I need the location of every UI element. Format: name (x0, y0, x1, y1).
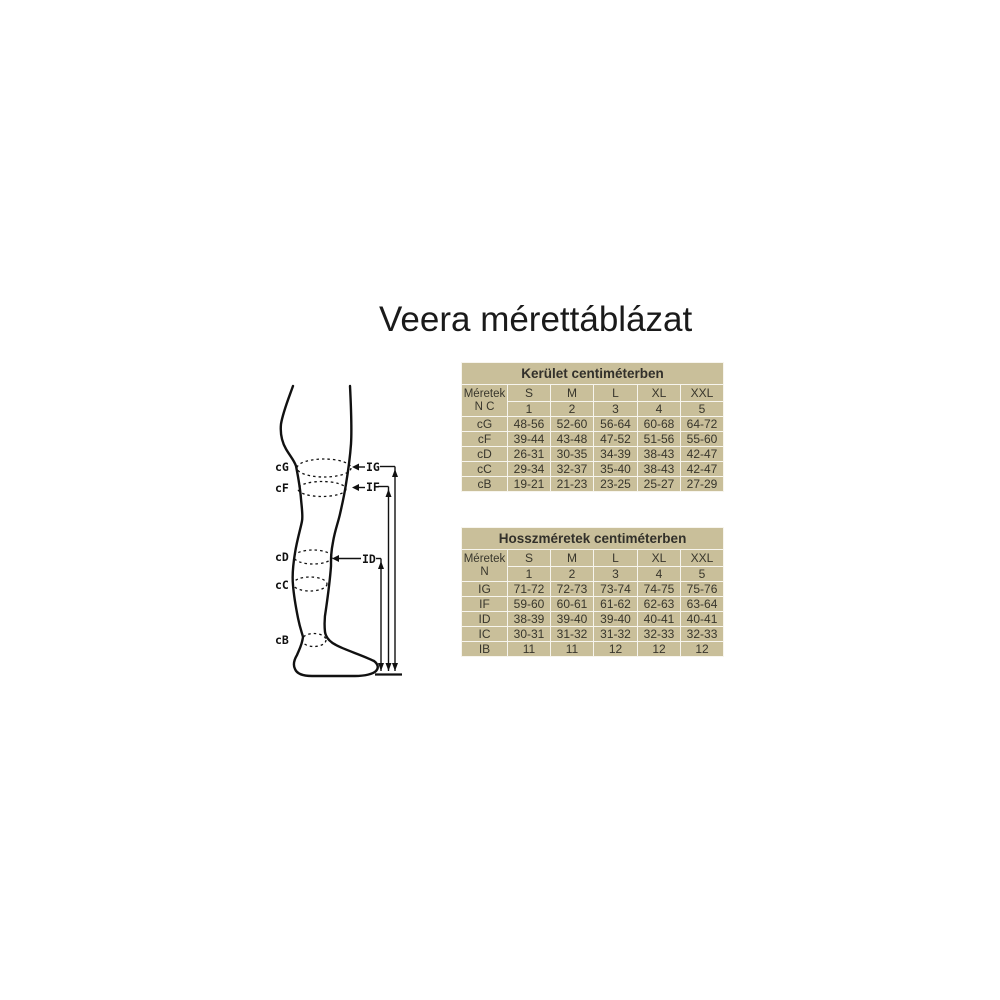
value-cell: 61-62 (594, 597, 638, 612)
value-cell: 23-25 (594, 477, 638, 492)
value-cell: 40-41 (638, 612, 681, 627)
value-cell: 40-41 (681, 612, 724, 627)
if-label: IF (366, 480, 380, 494)
value-cell: 71-72 (508, 582, 551, 597)
row-label-cell: cF (462, 432, 508, 447)
value-cell: 26-31 (508, 447, 551, 462)
value-cell: 62-63 (638, 597, 681, 612)
if-down-arrowhead (386, 663, 392, 671)
value-cell: 12 (638, 642, 681, 657)
value-cell: 55-60 (681, 432, 724, 447)
value-cell: 32-33 (681, 627, 724, 642)
value-cell: 19-21 (508, 477, 551, 492)
value-cell: 32-37 (551, 462, 594, 477)
value-cell: 60-61 (551, 597, 594, 612)
ig-up-arrowhead (392, 469, 398, 477)
ig-label: IG (366, 460, 380, 474)
cf-label: cF (275, 481, 289, 495)
circumference-table: Kerület centiméterbenMéretekN CSMLXLXXL1… (461, 362, 724, 492)
value-cell: 38-39 (508, 612, 551, 627)
value-cell: 12 (594, 642, 638, 657)
size-header-cell: XL (638, 550, 681, 567)
value-cell: 42-47 (681, 462, 724, 477)
value-cell: 39-40 (594, 612, 638, 627)
value-cell: 21-23 (551, 477, 594, 492)
value-cell: 38-43 (638, 462, 681, 477)
table-title: Kerület centiméterben (462, 363, 724, 385)
value-cell: 27-29 (681, 477, 724, 492)
table-row: cF39-4443-4847-5251-5655-60 (462, 432, 724, 447)
value-cell: 42-47 (681, 447, 724, 462)
cd-label: cD (275, 550, 289, 564)
value-cell: 11 (508, 642, 551, 657)
id-label: ID (362, 552, 376, 566)
value-cell: 48-56 (508, 417, 551, 432)
size-number-cell: 5 (681, 402, 724, 417)
value-cell: 31-32 (594, 627, 638, 642)
if-up-arrowhead (386, 489, 392, 497)
cc-circumference-ellipse (293, 577, 327, 591)
value-cell: 38-43 (638, 447, 681, 462)
table-row: cB19-2121-2323-2525-2727-29 (462, 477, 724, 492)
value-cell: 11 (551, 642, 594, 657)
value-cell: 52-60 (551, 417, 594, 432)
size-header-cell: M (551, 385, 594, 402)
corner-line-2: N C (462, 401, 507, 414)
table-row: IG71-7272-7373-7474-7575-76 (462, 582, 724, 597)
size-header-cell: XXL (681, 385, 724, 402)
value-cell: 72-73 (551, 582, 594, 597)
row-label-cell: ID (462, 612, 508, 627)
value-cell: 34-39 (594, 447, 638, 462)
cg-label: cG (275, 460, 289, 474)
page-title: Veera mérettáblázat (379, 299, 692, 340)
value-cell: 59-60 (508, 597, 551, 612)
row-label-cell: IG (462, 582, 508, 597)
cc-label: cC (275, 578, 289, 592)
corner-header-cell: MéretekN C (462, 385, 508, 417)
size-number-cell: 1 (508, 402, 551, 417)
size-header-cell: L (594, 385, 638, 402)
value-cell: 43-48 (551, 432, 594, 447)
size-number-cell: 4 (638, 567, 681, 582)
size-number-cell: 5 (681, 567, 724, 582)
value-cell: 35-40 (594, 462, 638, 477)
cb-circumference-ellipse (302, 634, 326, 647)
table-row: IF59-6060-6161-6262-6363-64 (462, 597, 724, 612)
value-cell: 51-56 (638, 432, 681, 447)
value-cell: 25-27 (638, 477, 681, 492)
value-cell: 39-40 (551, 612, 594, 627)
row-label-cell: IB (462, 642, 508, 657)
size-number-cell: 1 (508, 567, 551, 582)
size-header-cell: XL (638, 385, 681, 402)
value-cell: 73-74 (594, 582, 638, 597)
size-chart-page: Veera mérettáblázat cG cF cD cC cB IG IF (0, 0, 1000, 1000)
table-row: cG48-5652-6056-6460-6864-72 (462, 417, 724, 432)
cd-circumference-ellipse (294, 550, 332, 564)
id-up-arrowhead (378, 561, 384, 569)
table-row: IB1111121212 (462, 642, 724, 657)
size-header-cell: XXL (681, 550, 724, 567)
ig-left-arrowhead (352, 464, 359, 471)
corner-line-1: Méretek (462, 388, 507, 401)
row-label-cell: cG (462, 417, 508, 432)
row-label-cell: cD (462, 447, 508, 462)
table-row: cD26-3130-3534-3938-4342-47 (462, 447, 724, 462)
size-number-cell: 2 (551, 402, 594, 417)
leg-outline (281, 386, 378, 676)
table-row: IC30-3131-3231-3232-3332-33 (462, 627, 724, 642)
size-header-cell: L (594, 550, 638, 567)
cb-label: cB (275, 633, 289, 647)
value-cell: 63-64 (681, 597, 724, 612)
size-header-cell: S (508, 385, 551, 402)
value-cell: 60-68 (638, 417, 681, 432)
ig-down-arrowhead (392, 663, 398, 671)
value-cell: 47-52 (594, 432, 638, 447)
cf-circumference-ellipse (298, 482, 346, 497)
value-cell: 12 (681, 642, 724, 657)
size-number-cell: 4 (638, 402, 681, 417)
value-cell: 30-35 (551, 447, 594, 462)
value-cell: 64-72 (681, 417, 724, 432)
corner-header-cell: MéretekN (462, 550, 508, 582)
row-label-cell: cB (462, 477, 508, 492)
corner-line-1: Méretek (462, 553, 507, 566)
size-number-cell: 3 (594, 567, 638, 582)
id-left-arrowhead (332, 555, 339, 562)
value-cell: 75-76 (681, 582, 724, 597)
value-cell: 56-64 (594, 417, 638, 432)
size-header-cell: S (508, 550, 551, 567)
value-cell: 39-44 (508, 432, 551, 447)
row-label-cell: IC (462, 627, 508, 642)
length-table: Hosszméretek centiméterbenMéretekNSMLXLX… (461, 527, 724, 657)
size-number-cell: 2 (551, 567, 594, 582)
size-header-cell: M (551, 550, 594, 567)
if-left-arrowhead (352, 484, 359, 491)
table-title: Hosszméretek centiméterben (462, 528, 724, 550)
row-label-cell: cC (462, 462, 508, 477)
table-row: cC29-3432-3735-4038-4342-47 (462, 462, 724, 477)
value-cell: 32-33 (638, 627, 681, 642)
value-cell: 29-34 (508, 462, 551, 477)
value-cell: 31-32 (551, 627, 594, 642)
table-row: ID38-3939-4039-4040-4140-41 (462, 612, 724, 627)
row-label-cell: IF (462, 597, 508, 612)
leg-measurement-diagram: cG cF cD cC cB IG IF ID (258, 368, 428, 690)
cg-circumference-ellipse (297, 459, 351, 477)
size-number-cell: 3 (594, 402, 638, 417)
corner-line-2: N (462, 566, 507, 579)
value-cell: 30-31 (508, 627, 551, 642)
value-cell: 74-75 (638, 582, 681, 597)
